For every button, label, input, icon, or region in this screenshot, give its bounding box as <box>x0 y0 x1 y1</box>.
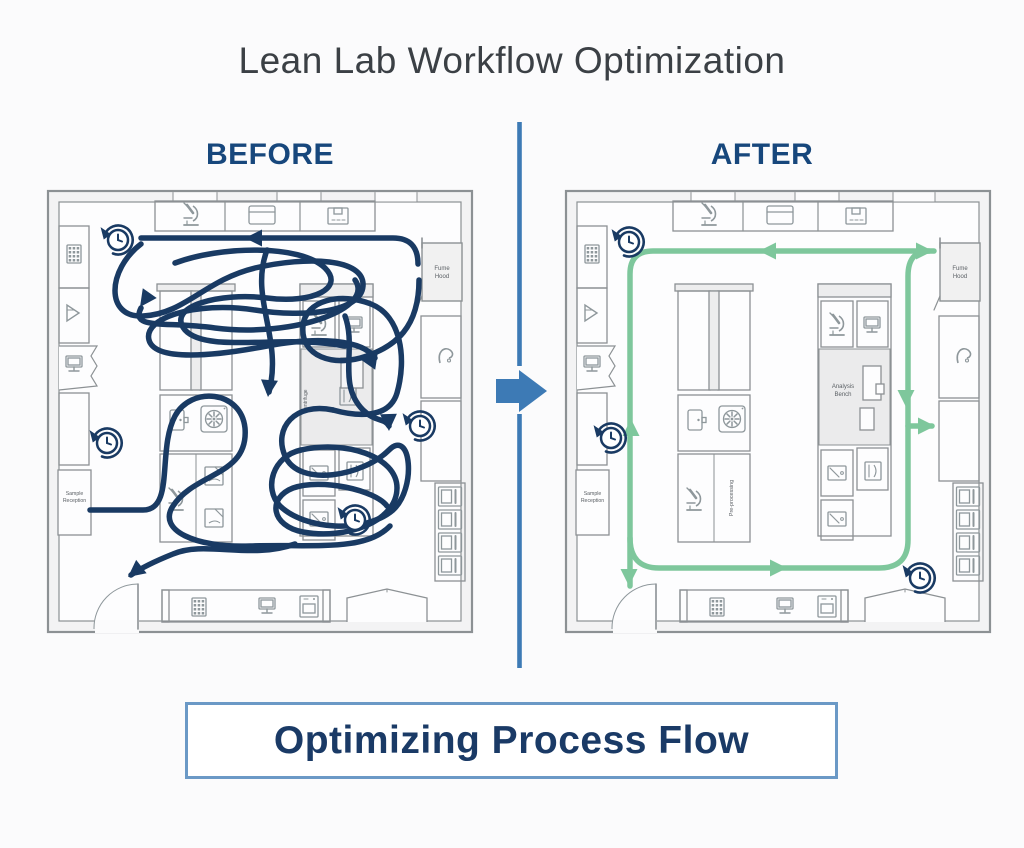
lab-room: SampleReceptionFumeHoodCentrifuge <box>48 191 472 633</box>
svg-text:Hood: Hood <box>435 274 449 280</box>
svg-text:Reception: Reception <box>581 498 604 504</box>
fume-hood: FumeHood <box>416 238 462 310</box>
door-opening <box>613 620 657 633</box>
banner-text: Optimizing Process Flow <box>274 719 749 763</box>
page-title: Lean Lab Workflow Optimization <box>0 40 1024 82</box>
sample-reception-label: Sample <box>584 491 602 497</box>
sample-reception-room: SampleReception <box>576 470 609 535</box>
after-floorplan: SampleReceptionFumeHoodPre-processingAna… <box>563 188 993 635</box>
pre-processing-label: Pre-processing <box>729 480 735 516</box>
after-label: AFTER <box>711 138 814 172</box>
fume-hood: FumeHood <box>934 238 980 310</box>
svg-text:Hood: Hood <box>953 274 967 280</box>
wall-window <box>173 193 217 202</box>
svg-text:Bench: Bench <box>834 392 851 398</box>
divider-line-top <box>517 122 522 366</box>
wall-window <box>795 193 839 202</box>
before-floorplan: SampleReceptionFumeHoodCentrifuge <box>45 188 475 635</box>
wall-window <box>375 193 417 202</box>
desk-notch <box>59 346 97 390</box>
door-opening <box>95 620 139 633</box>
divider-line-bottom <box>517 414 522 668</box>
desk-notch <box>577 346 615 390</box>
sample-reception-room: SampleReception <box>58 470 91 535</box>
fume-hood-label: Fume <box>434 266 450 272</box>
svg-text:Reception: Reception <box>63 498 86 504</box>
transition-arrow <box>496 370 547 412</box>
wall-window <box>893 193 935 202</box>
banner: Optimizing Process Flow <box>185 702 838 779</box>
analysis-bench-label: Analysis <box>832 384 854 390</box>
wall-window <box>277 193 321 202</box>
before-label: BEFORE <box>206 138 334 172</box>
fume-hood-label: Fume <box>952 266 968 272</box>
wall-window <box>691 193 735 202</box>
infographic-canvas: Lean Lab Workflow Optimization BEFORE AF… <box>0 0 1024 848</box>
sample-reception-label: Sample <box>66 491 84 497</box>
